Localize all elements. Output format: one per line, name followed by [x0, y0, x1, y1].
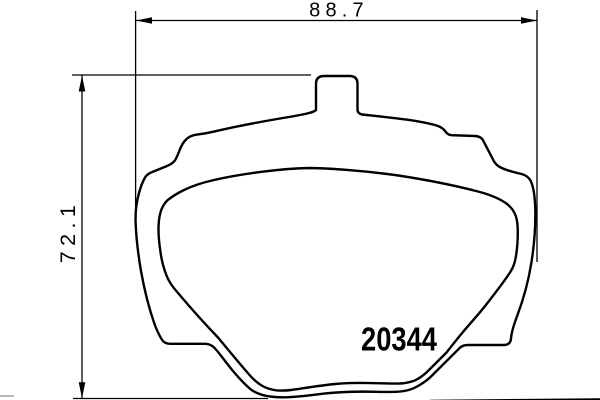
svg-text:20344: 20344: [361, 320, 438, 357]
svg-text:88.7: 88.7: [309, 0, 369, 21]
svg-text:72.1: 72.1: [56, 200, 80, 263]
